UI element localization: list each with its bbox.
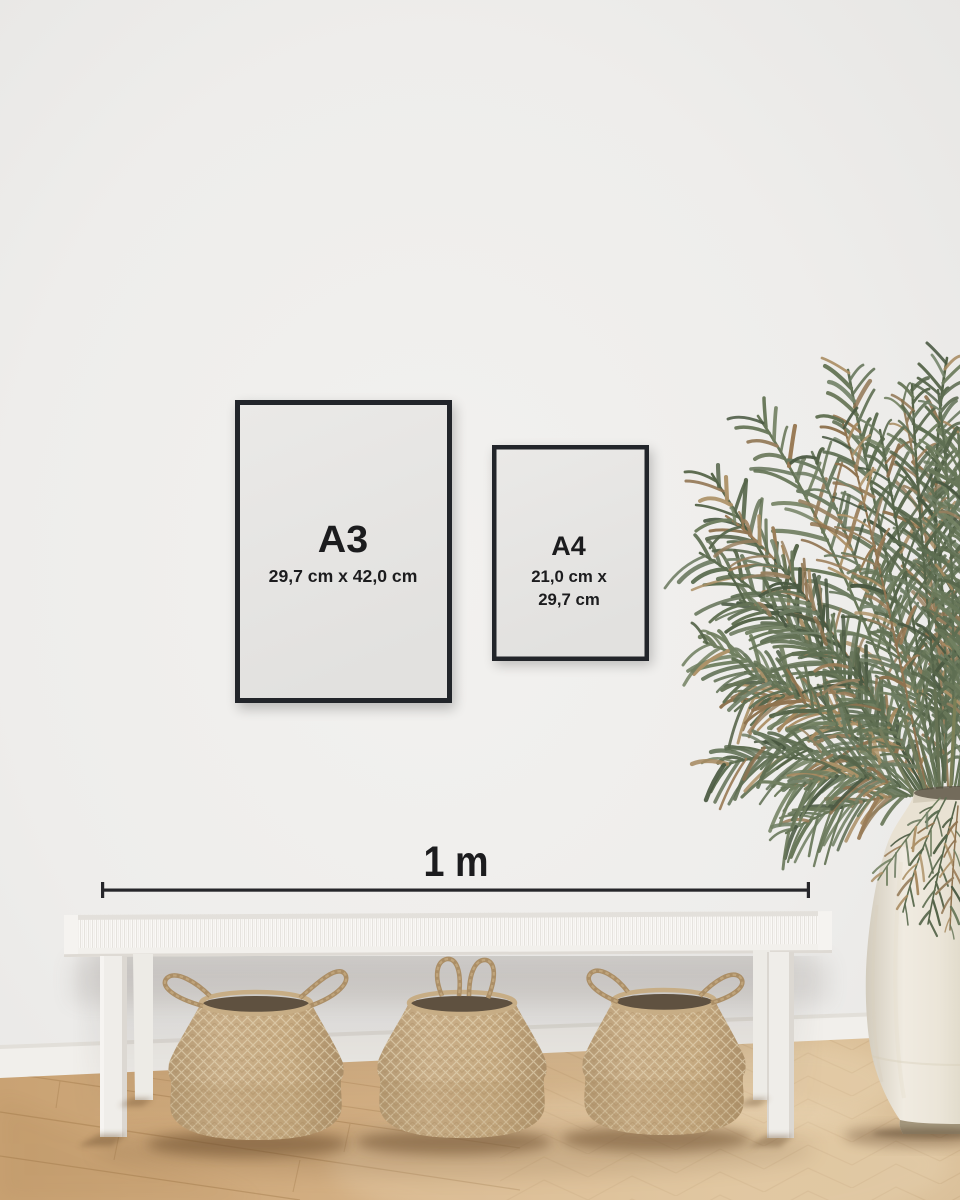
svg-text:A4: A4	[551, 531, 586, 561]
svg-text:1 m: 1 m	[423, 839, 488, 885]
svg-text:29,7 cm: 29,7 cm	[538, 590, 600, 609]
svg-text:29,7 cm x 42,0 cm: 29,7 cm x 42,0 cm	[269, 566, 418, 586]
svg-text:A3: A3	[318, 518, 368, 560]
svg-text:21,0 cm x: 21,0 cm x	[531, 567, 607, 586]
